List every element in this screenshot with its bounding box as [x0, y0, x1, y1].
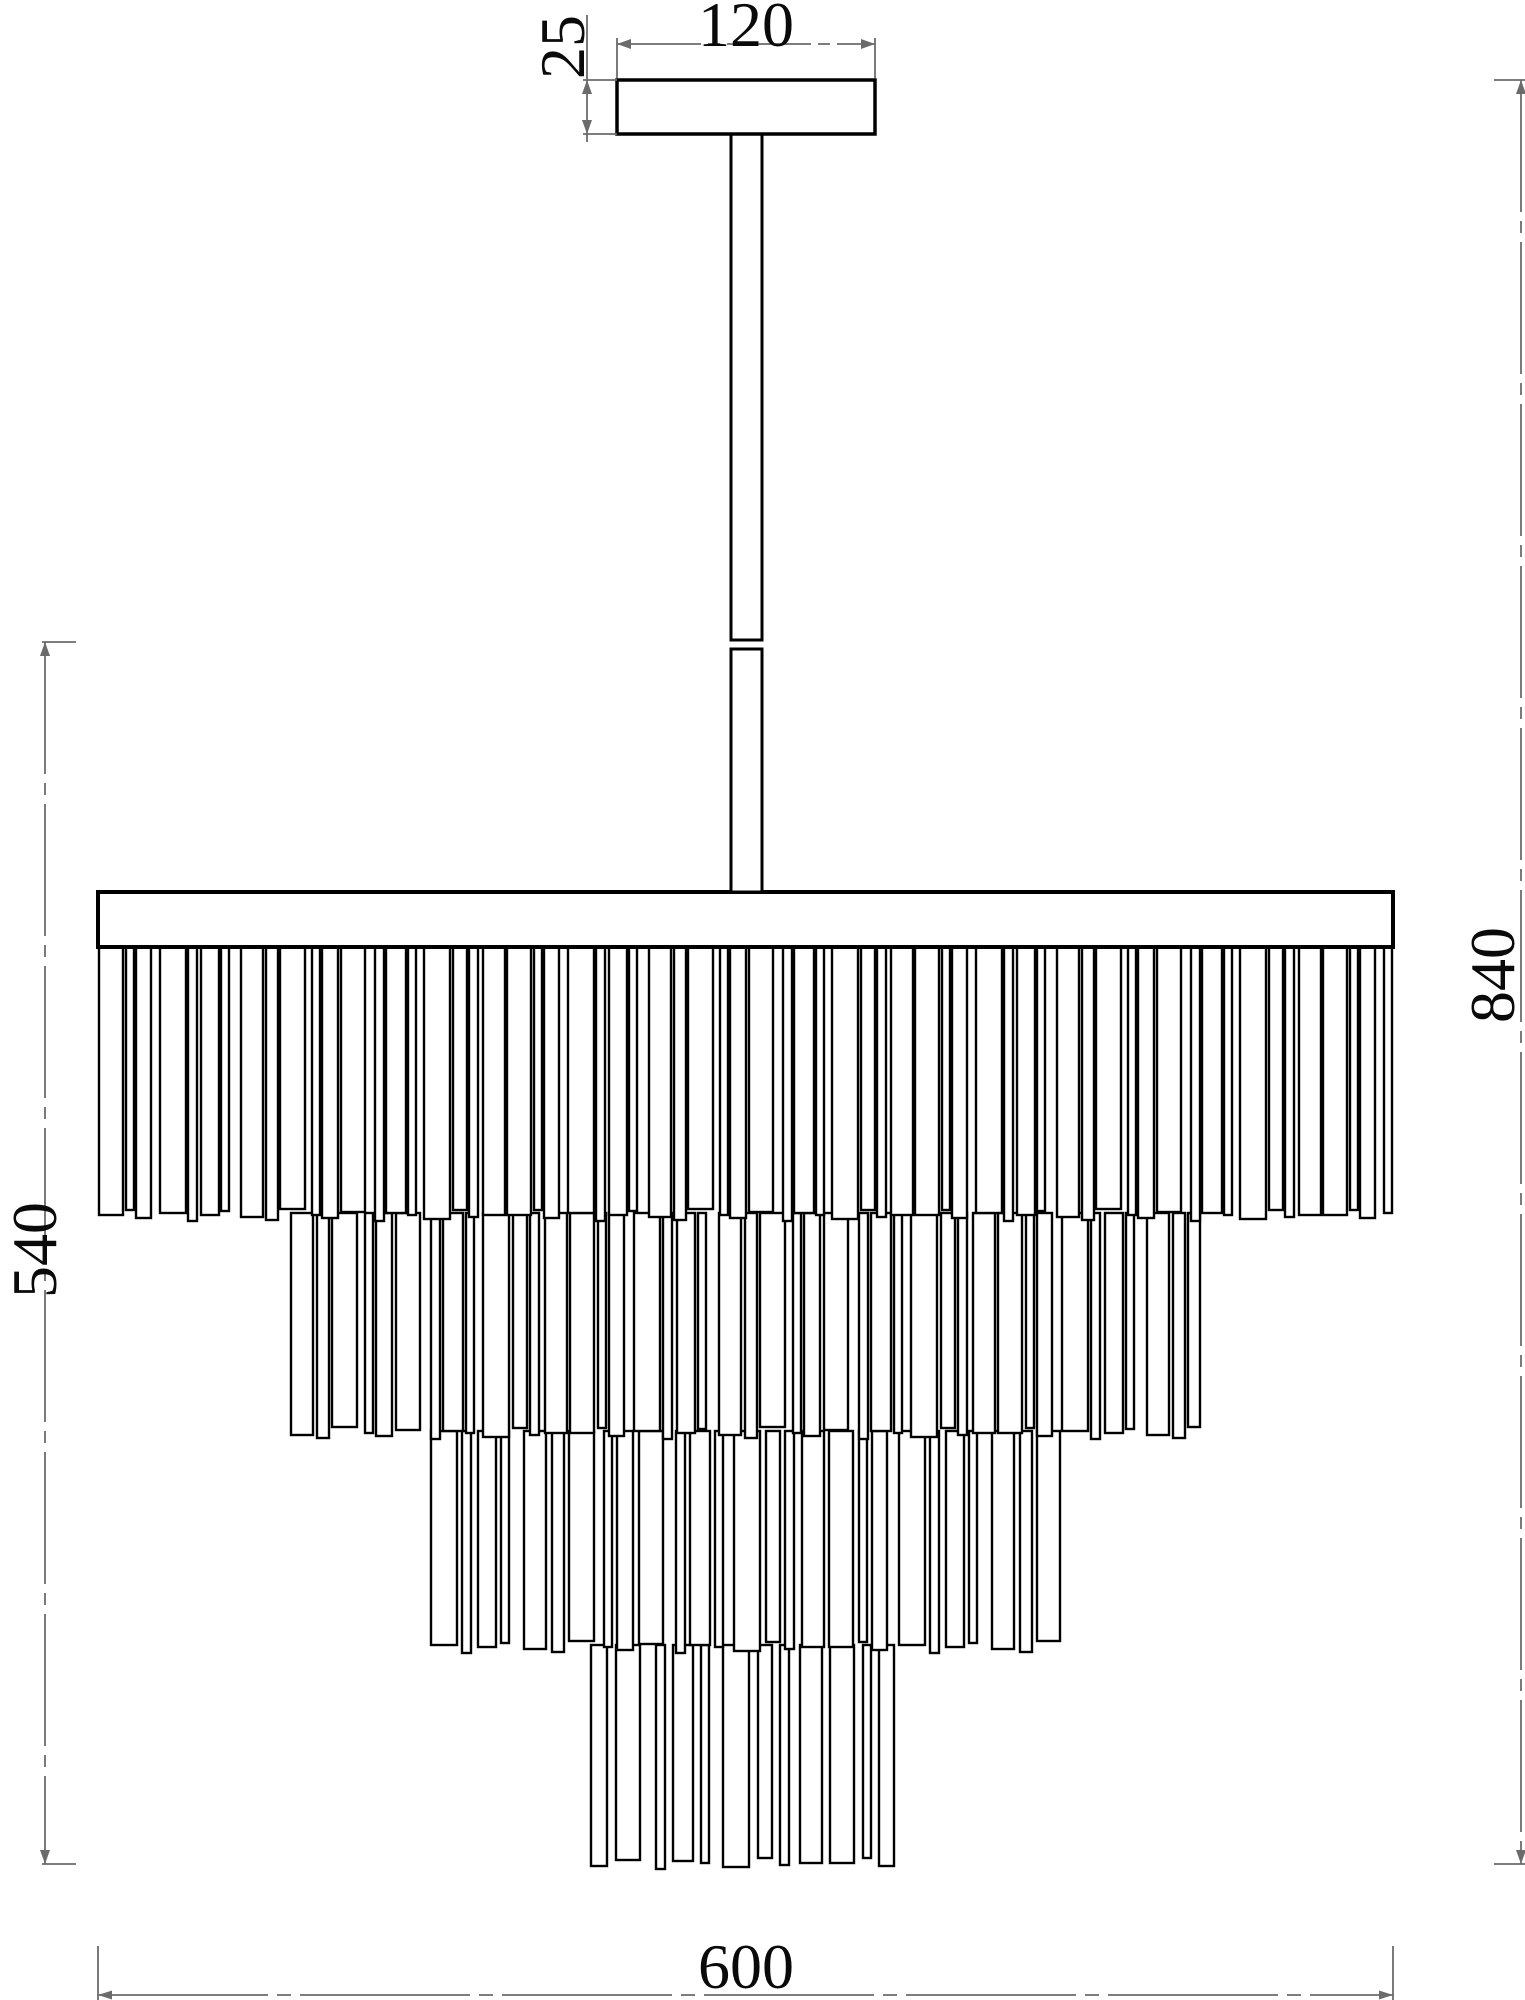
canopy-outline	[617, 80, 875, 134]
crystal-fringe-tiers	[99, 944, 1392, 1869]
top-plate	[98, 892, 1393, 947]
dim-label-body-diameter: 600	[698, 1931, 794, 2000]
dim-label-canopy-height: 25	[527, 15, 598, 79]
dim-label-canopy-width: 120	[698, 0, 794, 60]
hanging-rod	[731, 134, 762, 892]
dim-label-fringe-height: 540	[0, 1202, 70, 1298]
technical-drawing: 120 25 540 840 600	[0, 0, 1525, 2000]
drawing-sheet: 120 25 540 840 600	[0, 0, 1525, 2000]
dim-label-total-height: 840	[1457, 927, 1525, 1023]
